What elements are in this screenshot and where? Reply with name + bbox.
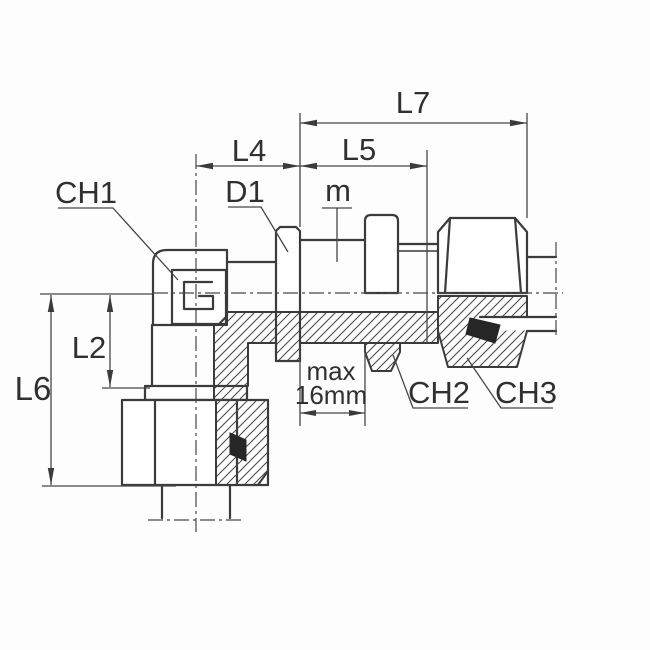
arrow-l6-bottom [48,468,54,485]
label-ch1: CH1 [55,175,117,210]
section-arm-wall [300,312,438,343]
label-l5: L5 [342,132,376,167]
label-l6: L6 [15,370,52,407]
elbow-body [153,250,227,325]
drawing-page: L7 L4 L5 D1 m CH1 L2 L6 max 16mm CH2 CH3 [0,0,650,650]
arrow-max-left [300,410,316,416]
locknut-upper [365,215,398,293]
label-ch3: CH3 [495,375,557,410]
section-bottom-nut-right [214,386,268,485]
section-locknut-lower [365,343,400,371]
label-ch2: CH2 [408,375,470,410]
arrow-l5-right [410,163,427,169]
arrow-l6-top [48,295,54,312]
label-d1: D1 [225,174,265,209]
label-l7: L7 [396,85,430,120]
arrow-max-right [349,410,365,416]
label-max-line2: 16mm [295,380,367,410]
arrow-l4-left [196,163,213,169]
arrow-l4-right [283,163,300,169]
arrow-l2-top [107,295,113,312]
label-l4: L4 [232,133,266,168]
arrow-l7-right [510,120,527,126]
label-l2: L2 [72,330,106,365]
label-m: m [325,173,351,208]
arrow-l2-bottom [107,370,113,387]
arrow-l7-left [300,120,317,126]
technical-drawing-bulkhead-elbow-fitting: L7 L4 L5 D1 m CH1 L2 L6 max 16mm CH2 CH3 [0,0,650,650]
section-flange-lower [276,312,300,361]
swivel-nut-upper [438,218,527,293]
arrow-l5-left [300,163,317,169]
